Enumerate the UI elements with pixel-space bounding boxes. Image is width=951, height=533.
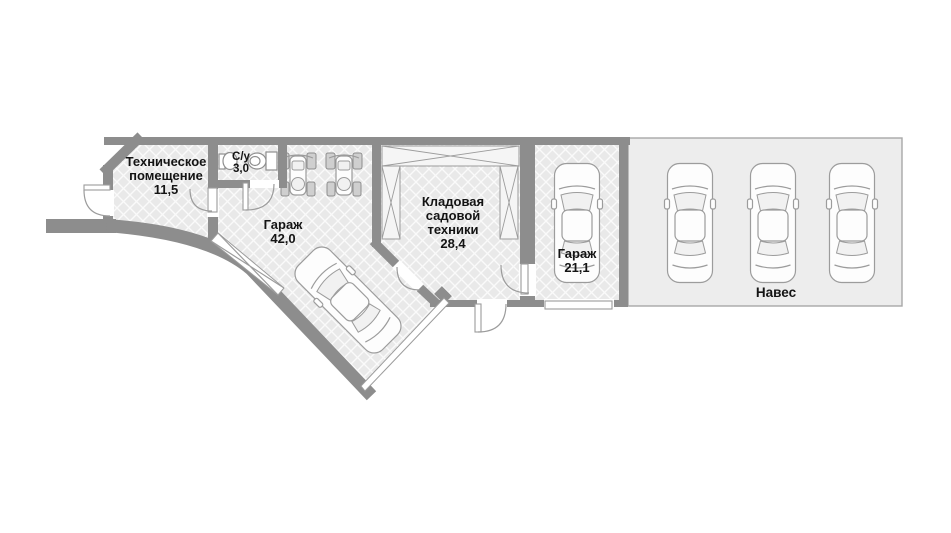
- bathroom-area: 3,0: [233, 163, 249, 175]
- door-leaf: [475, 304, 481, 332]
- door-leaf: [208, 188, 217, 212]
- car-icon: [827, 164, 878, 283]
- storage-label: Кладовая: [422, 194, 484, 209]
- tech-room-label: Техническое: [126, 154, 207, 169]
- garage-main-area: 42,0: [270, 231, 295, 246]
- tech-room-label: помещение: [129, 168, 203, 183]
- gate-small-garage: [545, 301, 612, 309]
- storage-label: техники: [428, 222, 479, 237]
- car-icon: [748, 164, 799, 283]
- canopy-label: Навес: [756, 285, 797, 300]
- garage-small-area: 21,1: [564, 260, 589, 275]
- storage-area: 28,4: [440, 236, 466, 251]
- door-arc: [478, 304, 506, 332]
- door-leaf: [243, 183, 248, 210]
- tech-room-area: 11,5: [154, 182, 179, 197]
- floor-plan-page: Техническое помещение 11,5 С/у 3,0 Гараж…: [0, 0, 951, 533]
- garage-main-label: Гараж: [264, 217, 304, 232]
- door-leaf: [84, 185, 110, 190]
- toilet-icon: [266, 152, 277, 170]
- floor-plan: Техническое помещение 11,5 С/у 3,0 Гараж…: [0, 0, 951, 533]
- car-icon: [665, 164, 716, 283]
- bathroom-label: С/у: [232, 151, 251, 163]
- door-leaf: [521, 264, 528, 294]
- garage-small-label: Гараж: [558, 246, 598, 261]
- storage-label: садовой: [426, 208, 481, 223]
